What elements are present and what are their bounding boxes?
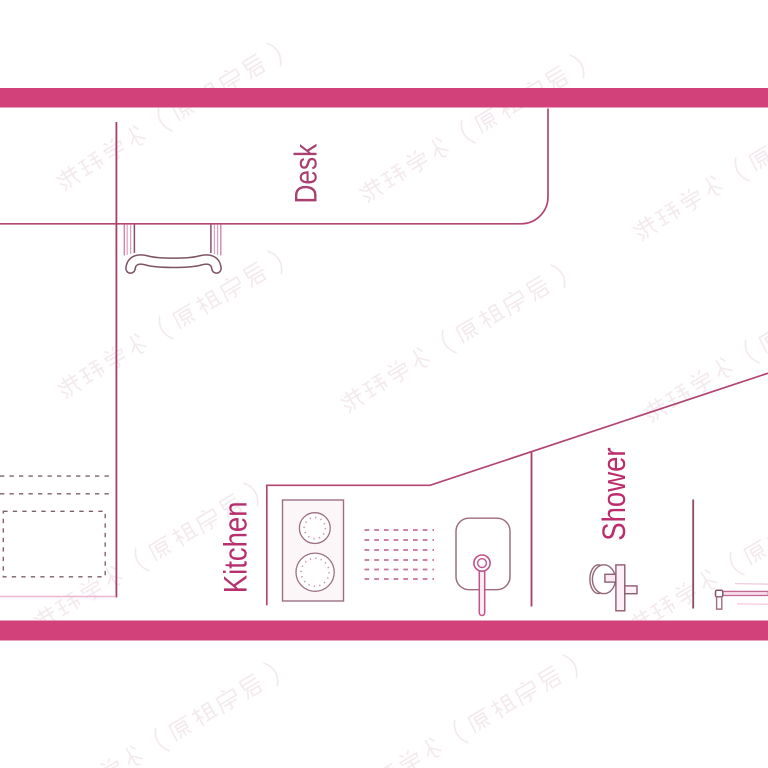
svg-text:Desk: Desk xyxy=(289,143,324,203)
svg-text:Shower: Shower xyxy=(597,447,633,540)
svg-text:Kitchen: Kitchen xyxy=(218,501,254,593)
